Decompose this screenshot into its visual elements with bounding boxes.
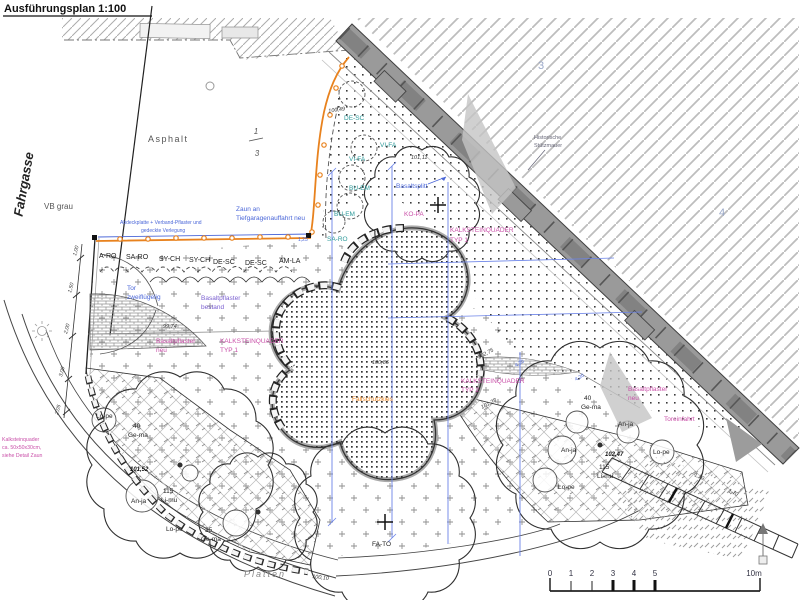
dimension-label: 1,50 <box>67 282 75 293</box>
limestone-label: KALKSTEINQUADER <box>450 227 514 234</box>
bed-plant-label: Lo-pe <box>653 449 670 456</box>
surface-label-basalt-neu: neu <box>628 395 639 402</box>
scale-end-label: 10m <box>746 569 762 578</box>
fence-detail-note: gedeckte Verlegung <box>141 228 185 234</box>
surface-label-vb-grau: VB grau <box>44 202 73 211</box>
scale-bar <box>550 578 760 591</box>
parcel-fraction-line <box>249 138 263 141</box>
bed-plant-count: 115 <box>599 464 610 471</box>
tree-code-label: FA-TO <box>372 541 391 548</box>
spot-elevation: 100,10 <box>312 574 330 582</box>
bed-plant-label: Li-mu <box>161 497 178 504</box>
tree-code-label: KO-PA <box>404 211 424 218</box>
plant-code-label: BU-EM <box>349 185 370 192</box>
bed-plant-count: 115 <box>163 488 174 495</box>
parcel-number: 4 <box>719 207 725 219</box>
wall-label: Historische <box>534 135 561 141</box>
spot-elevation: 101,11 <box>411 155 427 161</box>
surface-label-basalt-bestand: bestand <box>201 304 225 311</box>
plant-code-label: A-RO <box>99 253 117 260</box>
plant-code-label: VI-FA <box>349 156 366 163</box>
limestone-label: KALKSTEINQUADER <box>220 338 284 345</box>
dimension-label: 3,00 <box>58 366 66 377</box>
spot-elevation: 102,47 <box>605 452 624 458</box>
bed-plant-label: Ge-ma <box>581 404 601 411</box>
surface-label-basaltsplitt: Basaltsplitt <box>396 183 428 190</box>
surface-label-basalt-neu: neu <box>156 347 167 354</box>
bed-plant-label: Lo-pe <box>96 413 113 420</box>
limestone-label: TYP 1 <box>220 347 238 354</box>
plant-code-label: DE-SC <box>344 115 365 122</box>
bed-plant-label: Ge-ma <box>201 536 221 543</box>
limestone-note: Kalksteinquader <box>2 437 39 443</box>
bed-plant-label: An-ja <box>561 447 577 454</box>
spot-elevation: 100,86 <box>372 360 390 366</box>
plant-code-label: SA-RO <box>126 254 149 261</box>
gate-label: zweiflügelig <box>127 294 161 301</box>
scale-tick-label: 2 <box>590 569 595 578</box>
sun-symbol <box>32 321 52 341</box>
plant-code-label: DE-SC <box>213 259 235 266</box>
plant-code-label: BU-EM <box>334 211 355 218</box>
bed-plant-count: 40 <box>584 395 592 402</box>
spot-elevation: 99,74 <box>163 324 177 330</box>
surface-label-platten: Platten <box>244 569 286 579</box>
scale-tick-label: 4 <box>632 569 637 578</box>
plan-sheet: Ausführungsplan 1:100 Fahrgasse Asphalt … <box>0 0 800 600</box>
bed-plant-label: An-ja <box>618 421 634 428</box>
dimension-label: 1,25 <box>298 237 308 243</box>
fence-label: Tiefgaragenauffahrt neu <box>236 215 305 222</box>
gate-label: Tor <box>127 285 137 292</box>
bed-plant-count: 40 <box>133 423 141 430</box>
fence-posts <box>118 64 344 241</box>
bed-plant-label: Li-mu <box>597 473 614 480</box>
surface-label-basalt-neu: Basaltpflaster <box>628 386 668 393</box>
limestone-note: siehe Detail Zaun <box>2 453 42 459</box>
dimension-label: 1,00 <box>72 245 80 256</box>
plan-title: Ausführungsplan 1:100 <box>4 3 126 15</box>
bed-plant-label: Lo-pe <box>558 484 575 491</box>
gate-post <box>92 235 97 240</box>
garage-roof <box>62 18 350 90</box>
scale-tick-label: 1 <box>569 569 574 578</box>
fence-label: Zaun an <box>236 206 260 213</box>
plant-code-label: SY-CH <box>159 256 180 263</box>
bed-plant-label: An-ja <box>131 498 147 505</box>
scale-tick-label: 5 <box>653 569 658 578</box>
limestone-label: TYP 2 <box>461 387 479 394</box>
surface-label-basalt-bestand: Basaltpflaster <box>201 295 241 302</box>
bed-plant-count: 35 <box>205 527 213 534</box>
plant-code-label: SA-RO <box>327 236 348 243</box>
basalt-patch-southeast <box>618 455 770 560</box>
wall-label: Stützmauer <box>534 143 562 149</box>
gate-entry-label: Toreinfahrt <box>664 416 695 423</box>
limestone-label: KALKSTEINQUADER <box>461 378 525 385</box>
plant-code-label: SY-CH <box>189 257 210 264</box>
manhole-symbol <box>206 82 214 90</box>
surface-label-fallschutz: Fallschutzkies <box>352 396 394 403</box>
spot-elevation: 101,52 <box>130 467 149 473</box>
parcel-number: 1 <box>254 127 258 136</box>
parcel-number: 3 <box>538 60 544 72</box>
limestone-note: ca. 50x50x30cm, <box>2 445 41 451</box>
plant-code-label: DE-SC <box>245 260 267 267</box>
site-plan-canvas: Ausführungsplan 1:100 Fahrgasse Asphalt … <box>0 0 800 600</box>
limestone-label: TYP 1 <box>450 237 468 244</box>
surface-label-basalt-neu: Basaltpflaster <box>156 338 196 345</box>
dimension-label: 2,00 <box>63 323 72 335</box>
scale-tick-label: 3 <box>611 569 616 578</box>
plant-code-label: VI-FA <box>380 142 397 149</box>
bed-plant-label: Lo-pe <box>166 526 183 533</box>
plant-code-label: AM-LA <box>279 258 301 265</box>
street-label: Fahrgasse <box>11 151 37 218</box>
new-fence <box>92 57 349 241</box>
parcel-number: 3 <box>255 149 260 158</box>
dimension-label: 2,05 <box>54 404 63 416</box>
fence-detail-note: Abdeckplatte + Verband-Pflaster und <box>120 220 202 226</box>
scale-tick-label: 0 <box>548 569 553 578</box>
bed-plant-label: Ge-ma <box>128 432 148 439</box>
surface-label-asphalt: Asphalt <box>148 134 189 144</box>
